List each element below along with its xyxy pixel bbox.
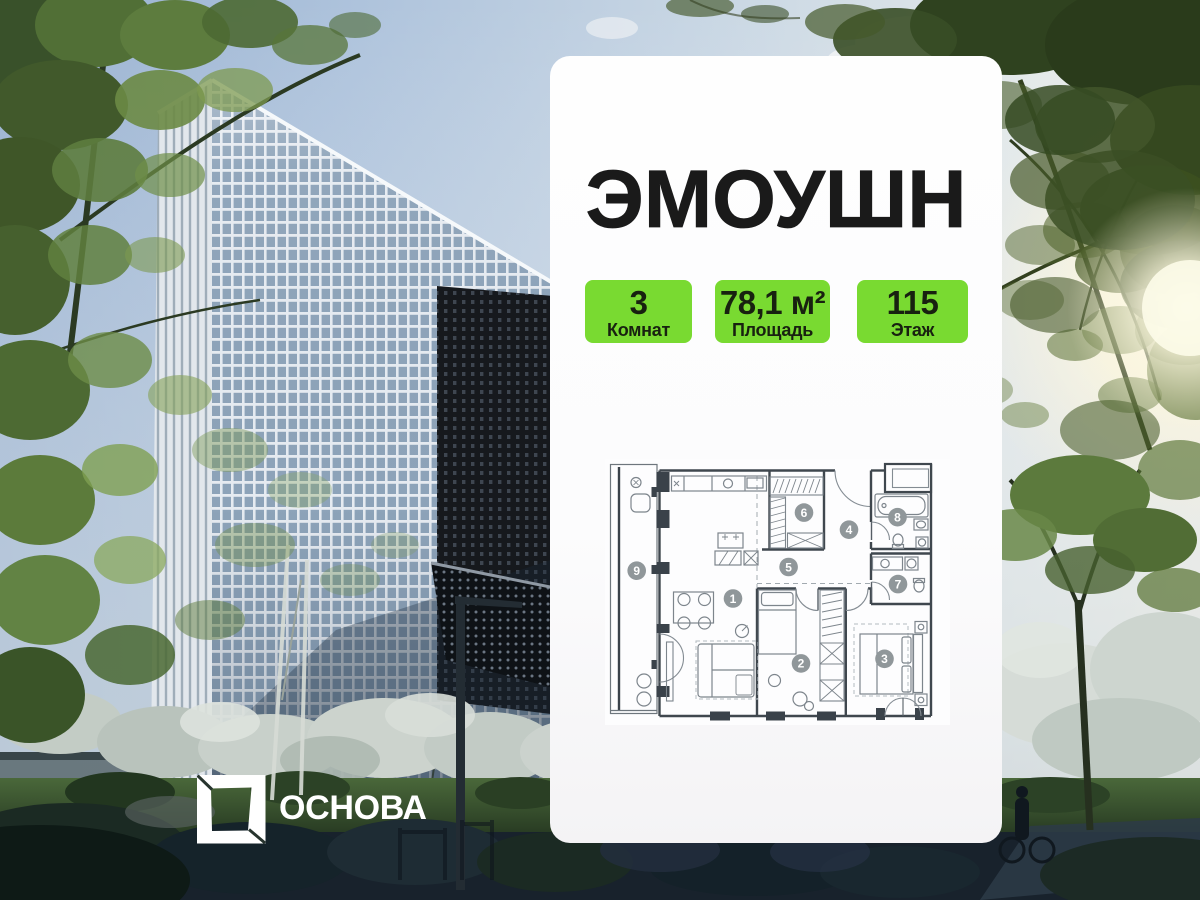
svg-text:2: 2: [798, 657, 805, 671]
svg-text:8: 8: [894, 511, 901, 525]
svg-text:3: 3: [881, 652, 888, 666]
svg-text:1: 1: [730, 592, 737, 606]
svg-text:7: 7: [895, 577, 902, 591]
svg-text:5: 5: [785, 560, 792, 574]
svg-text:4: 4: [846, 523, 853, 537]
svg-text:6: 6: [801, 506, 808, 520]
svg-text:9: 9: [633, 564, 640, 578]
